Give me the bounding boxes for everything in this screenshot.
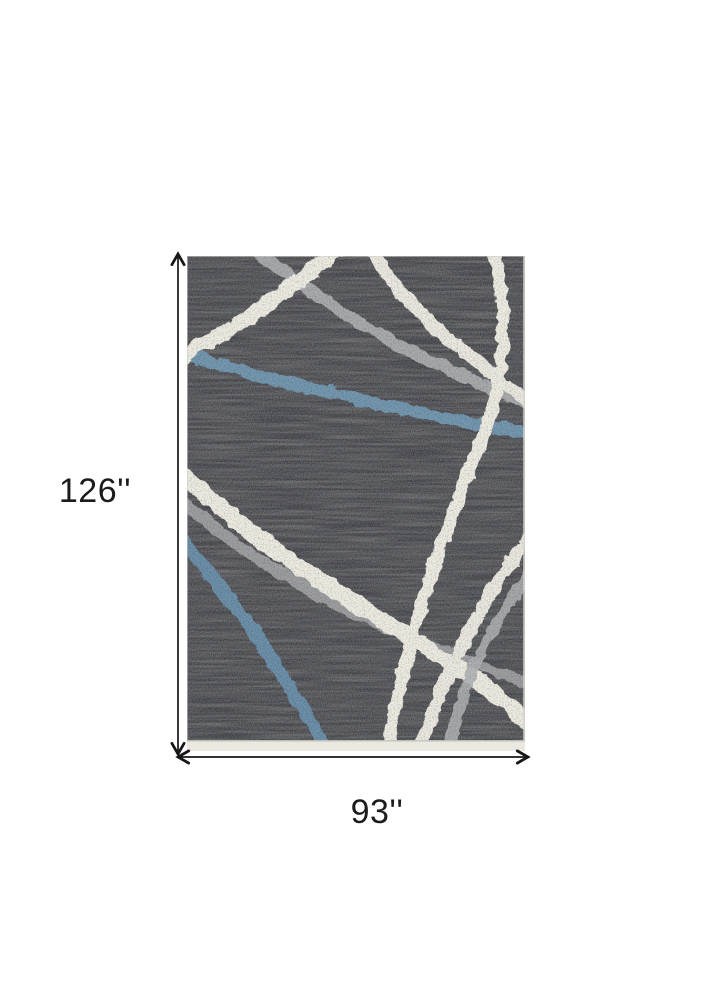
rug-product-image [187,256,525,751]
height-dimension-label: 126'' [30,472,160,511]
width-dimension-arrow [169,746,537,768]
width-dimension-label: 93'' [312,793,442,832]
rug-grain-dark [187,256,525,741]
height-dimension-arrow [167,248,189,760]
product-dimension-diagram: 126'' 93'' [0,0,706,1000]
